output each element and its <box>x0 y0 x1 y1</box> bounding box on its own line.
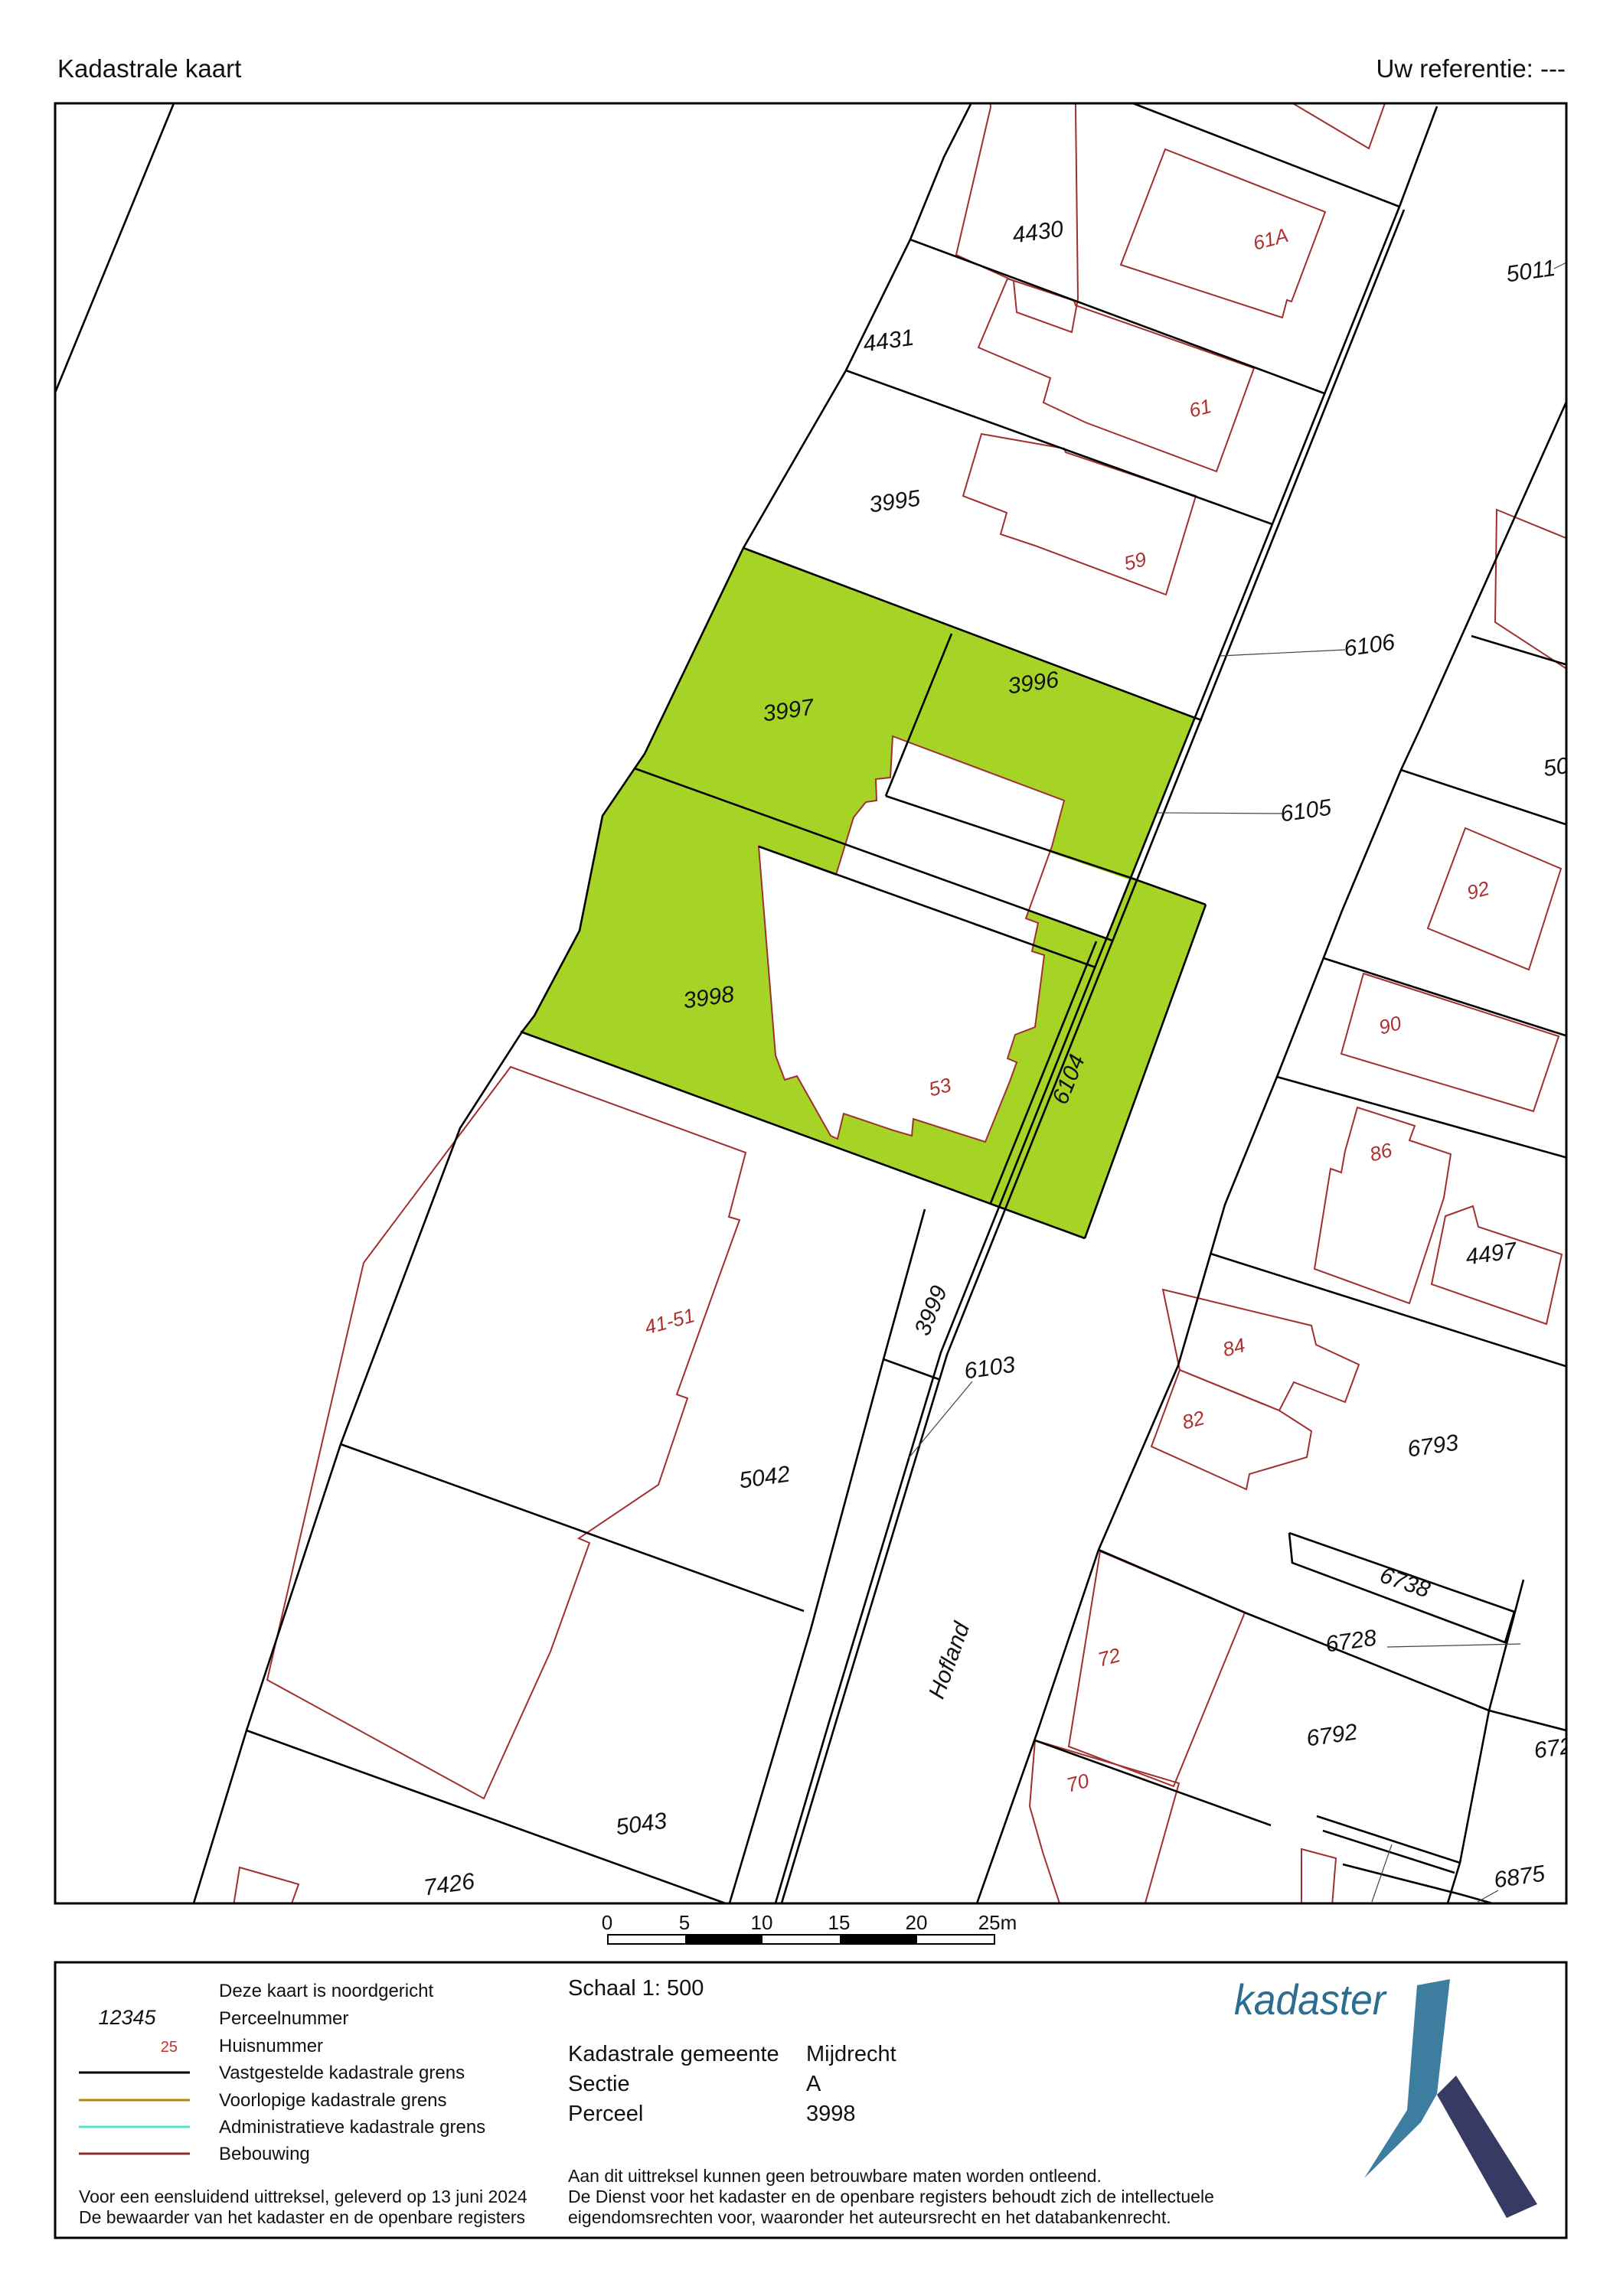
svg-text:De bewaarder van het kadaster: De bewaarder van het kadaster en de open… <box>79 2207 525 2227</box>
svg-text:25: 25 <box>161 2039 178 2056</box>
svg-text:Vastgestelde kadastrale grens: Vastgestelde kadastrale grens <box>219 2063 465 2083</box>
svg-text:Schaal 1: 500: Schaal 1: 500 <box>568 1976 704 2001</box>
svg-text:10: 10 <box>751 1911 773 1934</box>
svg-text:Mijdrecht: Mijdrecht <box>806 2042 896 2066</box>
svg-text:eigendomsrechten voor, waarond: eigendomsrechten voor, waaronder het aut… <box>568 2207 1171 2227</box>
svg-text:20: 20 <box>906 1911 928 1934</box>
svg-text:Kadastrale kaart: Kadastrale kaart <box>57 54 241 83</box>
svg-text:0: 0 <box>602 1911 612 1934</box>
svg-text:Sectie: Sectie <box>568 2072 630 2096</box>
svg-text:De Dienst voor het kadaster en: De Dienst voor het kadaster en de openba… <box>568 2187 1214 2206</box>
svg-text:Voorlopige kadastrale grens: Voorlopige kadastrale grens <box>219 2090 447 2111</box>
svg-text:Administratieve kadastrale gre: Administratieve kadastrale grens <box>219 2117 485 2138</box>
svg-text:Voor een eensluidend uittrekse: Voor een eensluidend uittreksel, gelever… <box>79 2187 527 2206</box>
svg-text:Deze kaart is noordgericht: Deze kaart is noordgericht <box>219 1981 433 2001</box>
svg-text:12345: 12345 <box>98 2006 156 2029</box>
svg-text:Aan dit uittreksel kunnen geen: Aan dit uittreksel kunnen geen betrouwba… <box>568 2166 1102 2186</box>
svg-text:Uw referentie: ---: Uw referentie: --- <box>1376 54 1566 83</box>
svg-text:A: A <box>806 2072 821 2096</box>
svg-text:5: 5 <box>679 1911 690 1934</box>
svg-text:Huisnummer: Huisnummer <box>219 2036 323 2056</box>
svg-text:15: 15 <box>828 1911 851 1934</box>
svg-text:kadaster: kadaster <box>1234 1975 1387 2024</box>
svg-text:Perceelnummer: Perceelnummer <box>219 2008 348 2029</box>
svg-text:Bebouwing: Bebouwing <box>219 2144 310 2164</box>
svg-text:25m: 25m <box>978 1911 1017 1934</box>
svg-text:Kadastrale gemeente: Kadastrale gemeente <box>568 2042 779 2066</box>
svg-text:Perceel: Perceel <box>568 2102 643 2126</box>
svg-text:3998: 3998 <box>806 2102 856 2126</box>
